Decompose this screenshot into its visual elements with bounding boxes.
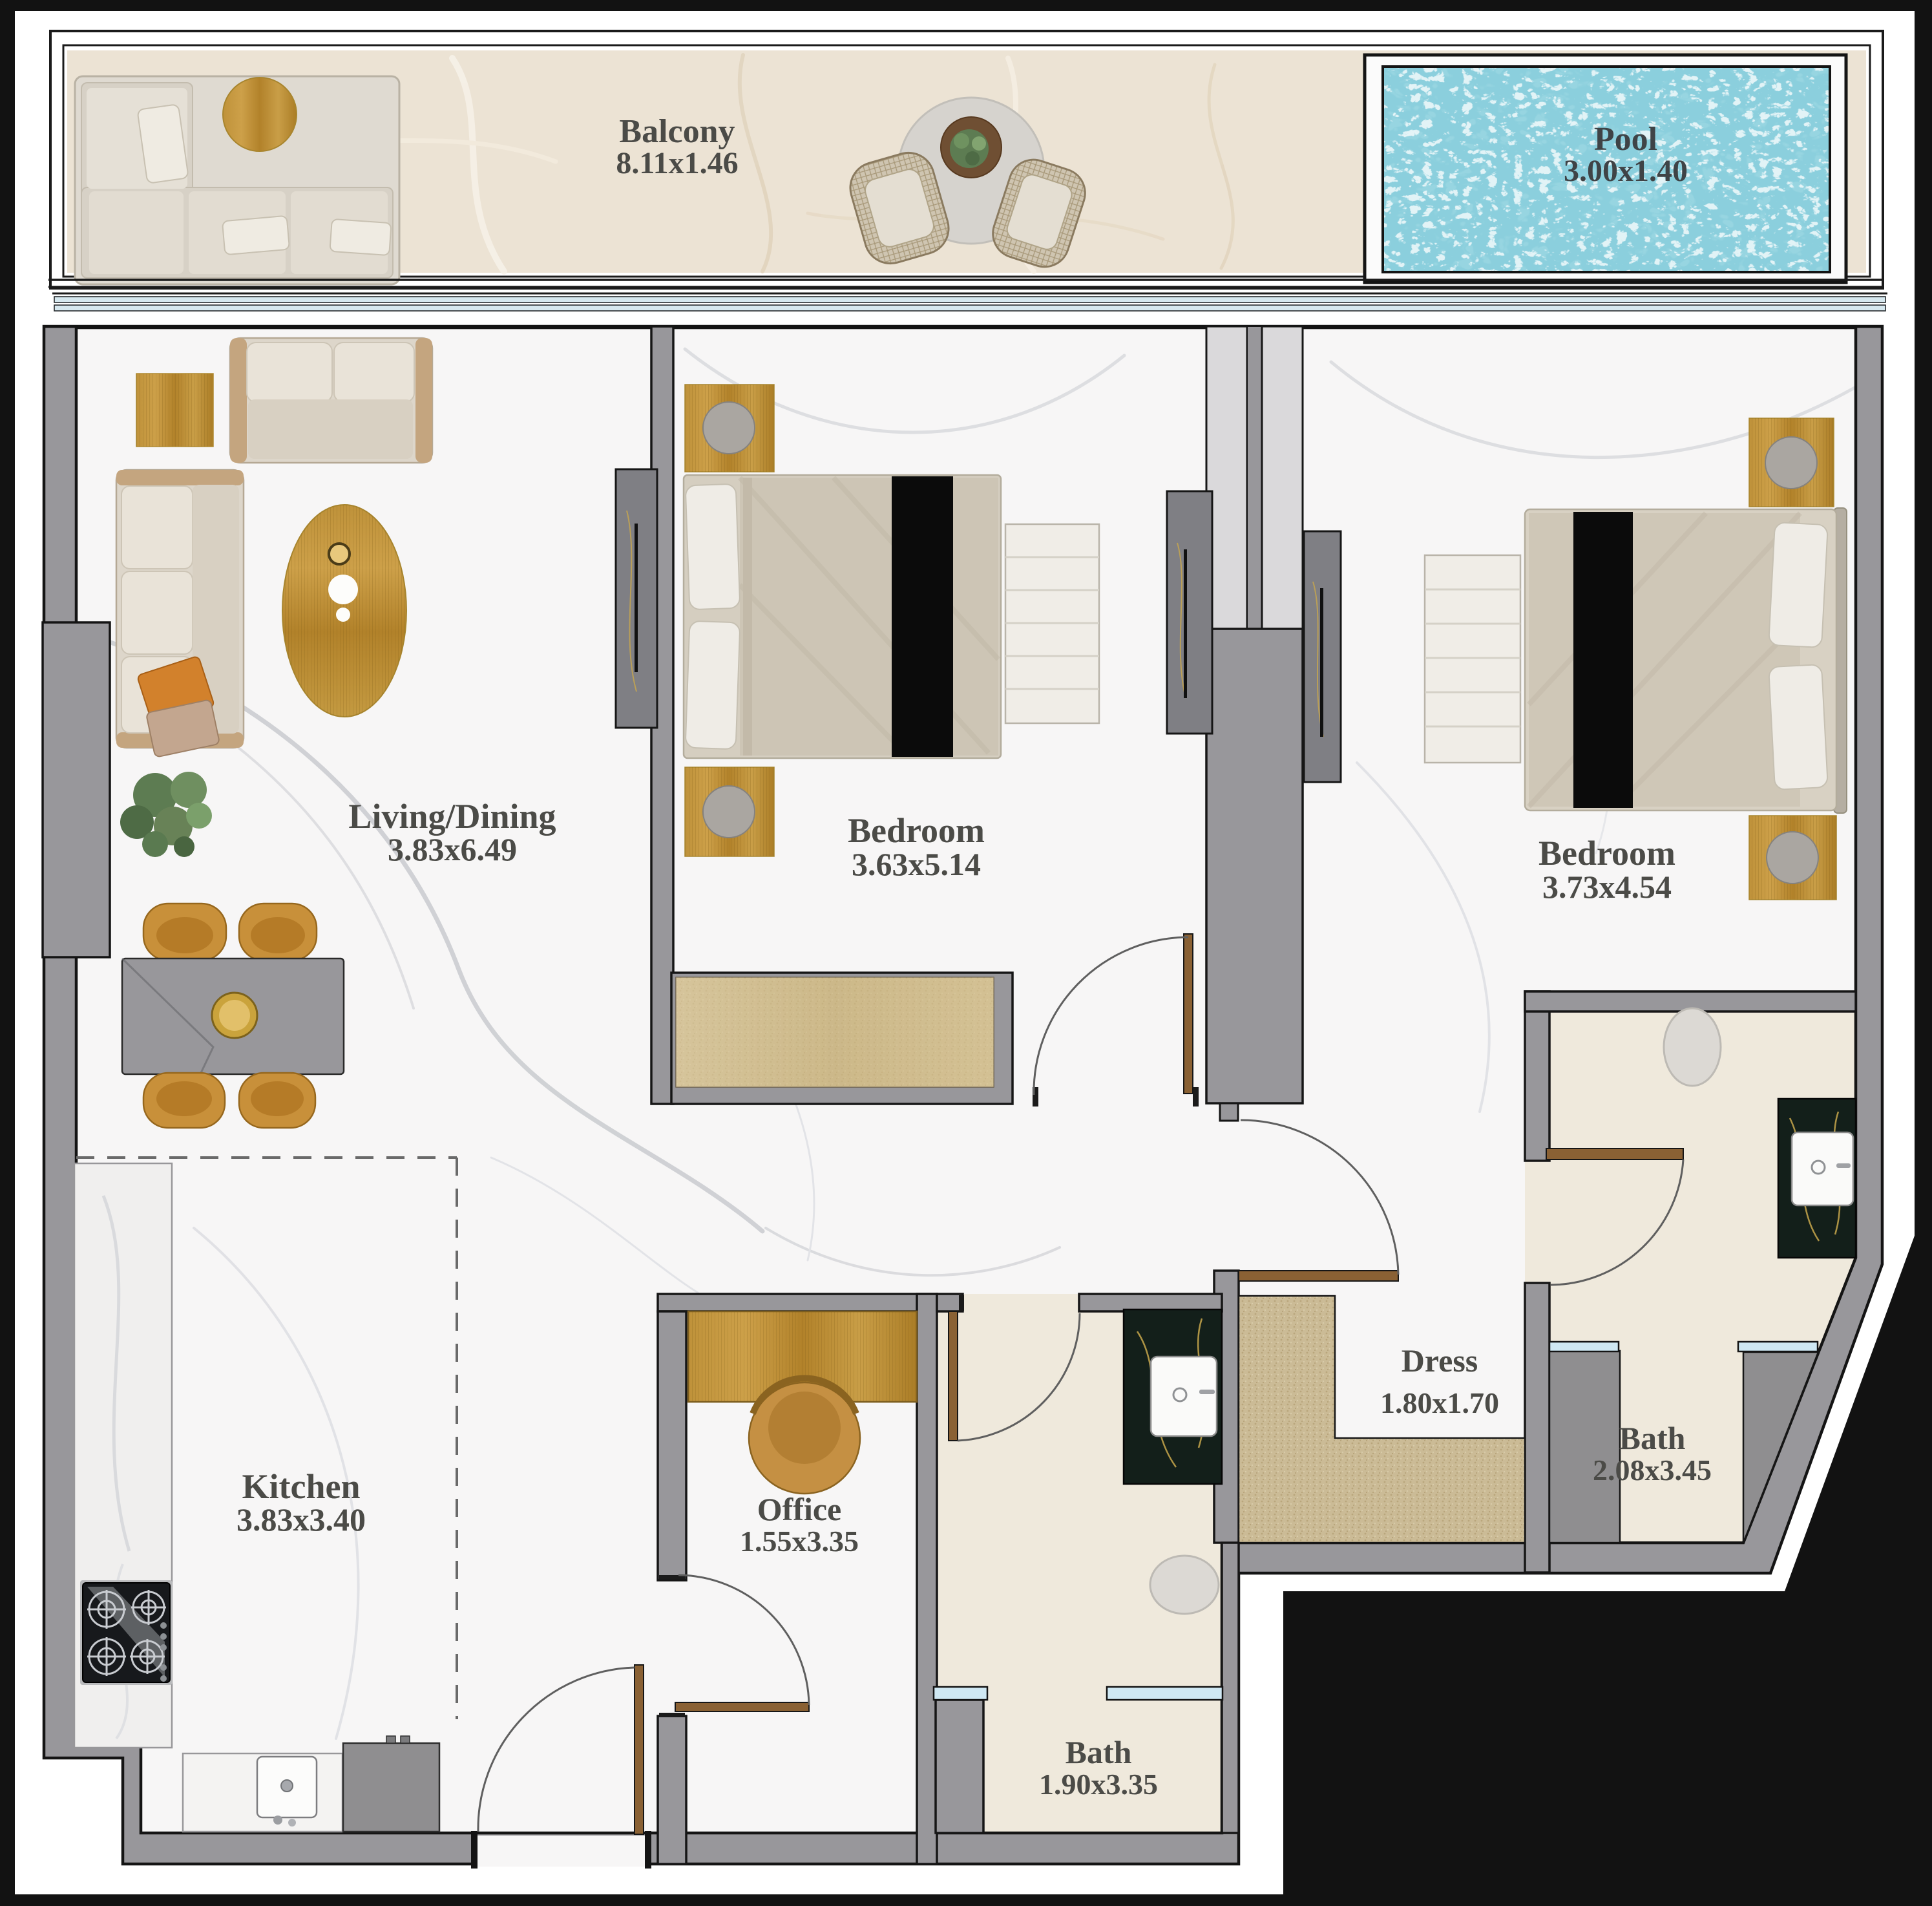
svg-text:3.73x4.54: 3.73x4.54 [1542, 869, 1672, 905]
svg-text:1.80x1.70: 1.80x1.70 [1380, 1386, 1499, 1419]
svg-text:Dress: Dress [1402, 1342, 1478, 1379]
svg-text:3.83x3.40: 3.83x3.40 [236, 1501, 366, 1538]
svg-text:1.90x3.35: 1.90x3.35 [1039, 1768, 1158, 1801]
svg-text:Pool: Pool [1594, 121, 1657, 158]
svg-text:Office: Office [757, 1491, 841, 1527]
svg-text:2.08x3.45: 2.08x3.45 [1593, 1454, 1712, 1487]
svg-text:Kitchen: Kitchen [242, 1467, 361, 1506]
svg-text:3.83x6.49: 3.83x6.49 [388, 831, 517, 867]
svg-text:Bath: Bath [1066, 1734, 1132, 1770]
svg-text:Bedroom: Bedroom [1538, 834, 1675, 873]
svg-text:Bedroom: Bedroom [848, 811, 985, 850]
svg-text:8.11x1.46: 8.11x1.46 [616, 146, 738, 180]
svg-text:3.63x5.14: 3.63x5.14 [852, 846, 981, 882]
svg-text:Balcony: Balcony [619, 113, 735, 150]
svg-text:1.55x3.35: 1.55x3.35 [740, 1525, 859, 1558]
svg-text:Living/Dining: Living/Dining [348, 797, 556, 836]
svg-text:3.00x1.40: 3.00x1.40 [1564, 154, 1688, 188]
svg-text:Bath: Bath [1619, 1420, 1686, 1456]
